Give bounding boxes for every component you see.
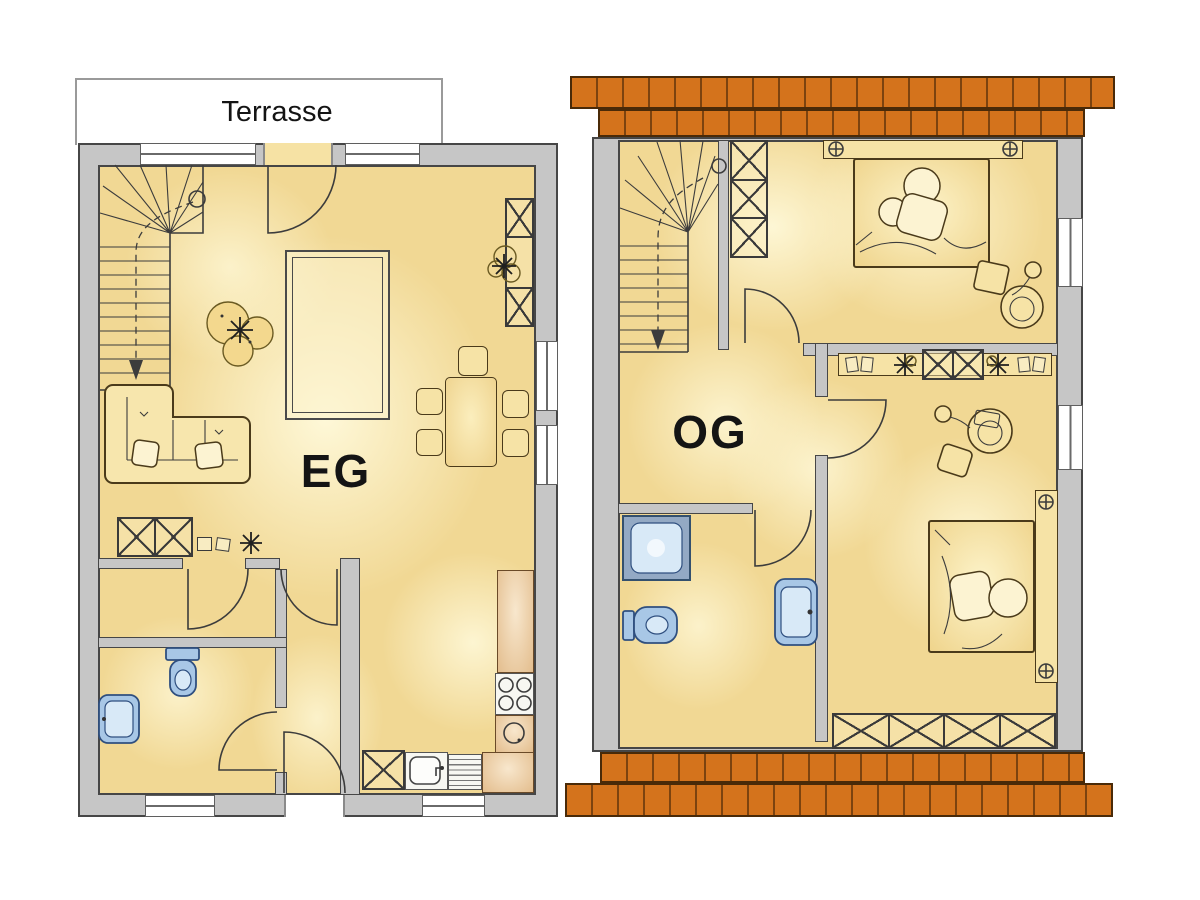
- eg-label: EG: [301, 444, 371, 498]
- eg-entry-door-opening: [284, 795, 345, 817]
- rug: [285, 250, 390, 420]
- wardrobe-cell: [507, 287, 532, 325]
- dresser-book-3: [1017, 356, 1031, 372]
- eg-wall-storage-left: [98, 558, 183, 569]
- kitchen-counter-tall: [497, 570, 534, 673]
- sideboard-item-1: [197, 537, 212, 551]
- stove: [495, 673, 534, 715]
- wardrobe-cell: [952, 351, 982, 378]
- og-window-right-1: [1058, 218, 1083, 287]
- dining-chair-left-2: [416, 429, 443, 456]
- wardrobe-cell: [834, 715, 888, 747]
- og-wall-hall-bedroom2-lower: [815, 455, 828, 742]
- og-wardrobe-bottom: [832, 713, 1056, 749]
- eg-wall-hall-kitchen: [340, 558, 360, 795]
- wardrobe-cell: [924, 351, 952, 378]
- kitchen-counter-corner: [482, 752, 534, 793]
- eg-window-right-1: [536, 341, 558, 411]
- roof-top-outer: [570, 76, 1115, 109]
- og-dresser-x-cabinet: [922, 349, 984, 380]
- dining-table: [445, 377, 497, 467]
- og-wall-stair-bedroom: [718, 140, 729, 350]
- eg-window-right-2: [536, 425, 558, 485]
- kitchen-cabinet-small: [495, 715, 534, 753]
- kitchen-sink-cabinet: [405, 752, 448, 790]
- dining-chair-right-2: [502, 429, 529, 457]
- floorplan-canvas: Terrasse: [0, 0, 1200, 900]
- wardrobe-cell: [732, 179, 766, 218]
- wardrobe-cell: [507, 200, 532, 236]
- kitchen-drainer: [448, 754, 482, 790]
- shelf-unit: [505, 198, 534, 327]
- dining-chair-right-1: [502, 390, 529, 418]
- terrace-label: Terrasse: [221, 96, 332, 129]
- wardrobe-cell: [943, 715, 999, 747]
- og-wall-hall-bedroom2-upper: [815, 343, 828, 397]
- wardrobe-cell: [119, 519, 154, 555]
- og-wardrobe-top: [730, 140, 768, 258]
- bed2-headboard: [1035, 490, 1058, 683]
- eg-wall-corridor-lower: [275, 772, 287, 795]
- eg-window-bottom-1: [145, 795, 215, 817]
- bed2: [928, 520, 1035, 653]
- dining-chair-left-1: [416, 388, 443, 415]
- sideboard: [117, 517, 193, 557]
- dresser-book-4: [1032, 356, 1046, 373]
- eg-wall-storage-right: [245, 558, 280, 569]
- eg-window-top-2: [345, 143, 420, 165]
- dresser-book-2: [860, 356, 874, 372]
- wardrobe-cell: [732, 142, 766, 179]
- eg-window-bottom-2: [422, 795, 485, 817]
- bed1-headboard: [823, 140, 1023, 159]
- sideboard-item-2: [215, 537, 231, 552]
- kitchen-x-cabinet: [362, 750, 405, 790]
- eg-terrace-door-opening: [263, 143, 333, 165]
- wardrobe-cell: [999, 715, 1055, 747]
- bed1: [853, 158, 990, 268]
- wardrobe-cell: [888, 715, 944, 747]
- eg-wall-bath-divider: [98, 637, 287, 648]
- og-window-right-2: [1058, 405, 1083, 470]
- og-wall-bath-divider: [618, 503, 753, 514]
- roof-top-inner: [598, 109, 1085, 137]
- wardrobe-cell: [732, 217, 766, 256]
- og-label: OG: [672, 405, 748, 459]
- dresser-book-1: [845, 356, 859, 373]
- wardrobe-cell: [154, 519, 191, 555]
- eg-window-top-1: [140, 143, 256, 165]
- rug-inner: [292, 257, 383, 413]
- shelf-open-cell: [507, 236, 532, 288]
- dining-chair-top: [458, 346, 488, 376]
- roof-bottom-outer: [565, 783, 1113, 817]
- roof-bottom-inner: [600, 752, 1085, 783]
- wardrobe-cell: [364, 752, 403, 788]
- terrace-area: Terrasse: [75, 78, 443, 145]
